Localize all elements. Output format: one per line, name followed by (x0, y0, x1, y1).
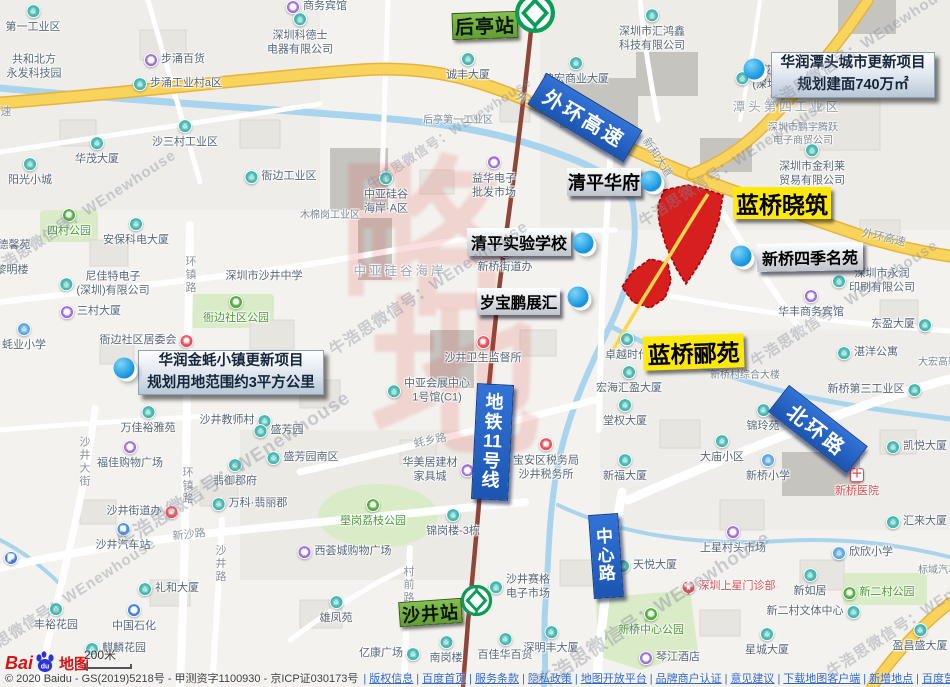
estate-label: 蓝桥晓筑 (733, 187, 831, 219)
footer-link[interactable]: 品牌商户认证 (656, 673, 722, 685)
road-badge: 外环高速 (527, 73, 642, 162)
project-info-box: 华润金蚝小镇更新项目规划用地范围约3平方公里 (138, 350, 324, 395)
estate-label: 新桥四季名苑 (757, 242, 863, 272)
annotation-layer: 后亭站沙井站外环高速地铁11号线中心路北环路蓝桥晓筑蓝桥郦苑清平华府清平实验学校… (0, 0, 950, 687)
marker-dot (744, 59, 765, 80)
marker-dot (573, 233, 594, 254)
copyright-text: © 2020 Baidu - GS(2019)5218号 - 甲测资字11009… (5, 673, 358, 685)
road-badge: 中心路 (588, 513, 624, 599)
footer-link[interactable]: 百度首页 (422, 673, 466, 685)
marker-dot (641, 171, 662, 192)
estate-label: 清平实验学校 (467, 228, 571, 256)
metro-station-label: 后亭站 (452, 11, 519, 40)
footer-link[interactable]: 地图开放平台 (581, 673, 647, 685)
footer-link[interactable]: 版权信息 (369, 673, 413, 685)
metro-station-label: 沙井站 (398, 598, 463, 627)
metro-logo-icon (514, 0, 556, 39)
road-badge: 地铁11号线 (471, 383, 514, 501)
estate-label: 岁宝鹏展汇 (477, 288, 560, 315)
scale-line (84, 664, 132, 669)
map-scale: 200米 (84, 646, 132, 669)
footer-link[interactable]: 下载地图客户端 (783, 673, 860, 685)
footer-link[interactable]: 百度营销 (922, 673, 950, 685)
footer-link[interactable]: 服务条款 (475, 673, 519, 685)
footer-link[interactable]: 意见建议 (730, 673, 774, 685)
estate-label: 蓝桥郦苑 (642, 333, 744, 371)
project-info-box: 华润潭头城市更新项目规划建面740万㎡ (771, 52, 935, 98)
footer-link[interactable]: 隐私政策 (528, 673, 572, 685)
footer-link[interactable]: 新增地点 (869, 673, 913, 685)
marker-dot (114, 358, 135, 379)
road-badge: 北环路 (768, 385, 868, 473)
map-canvas[interactable]: 商务宾馆◆第一工业区⌂深圳科德士电器有限公司⌂深圳市汇鸿鑫科技有限公司⌂共和北方… (0, 0, 950, 687)
marker-dot (568, 287, 589, 308)
estate-label: 清平华府 (567, 168, 641, 196)
map-attribution: © 2020 Baidu - GS(2019)5218号 - 甲测资字11009… (5, 670, 950, 686)
scale-label: 200米 (84, 648, 116, 662)
metro-logo-icon (460, 584, 493, 622)
marker-dot (731, 246, 752, 267)
